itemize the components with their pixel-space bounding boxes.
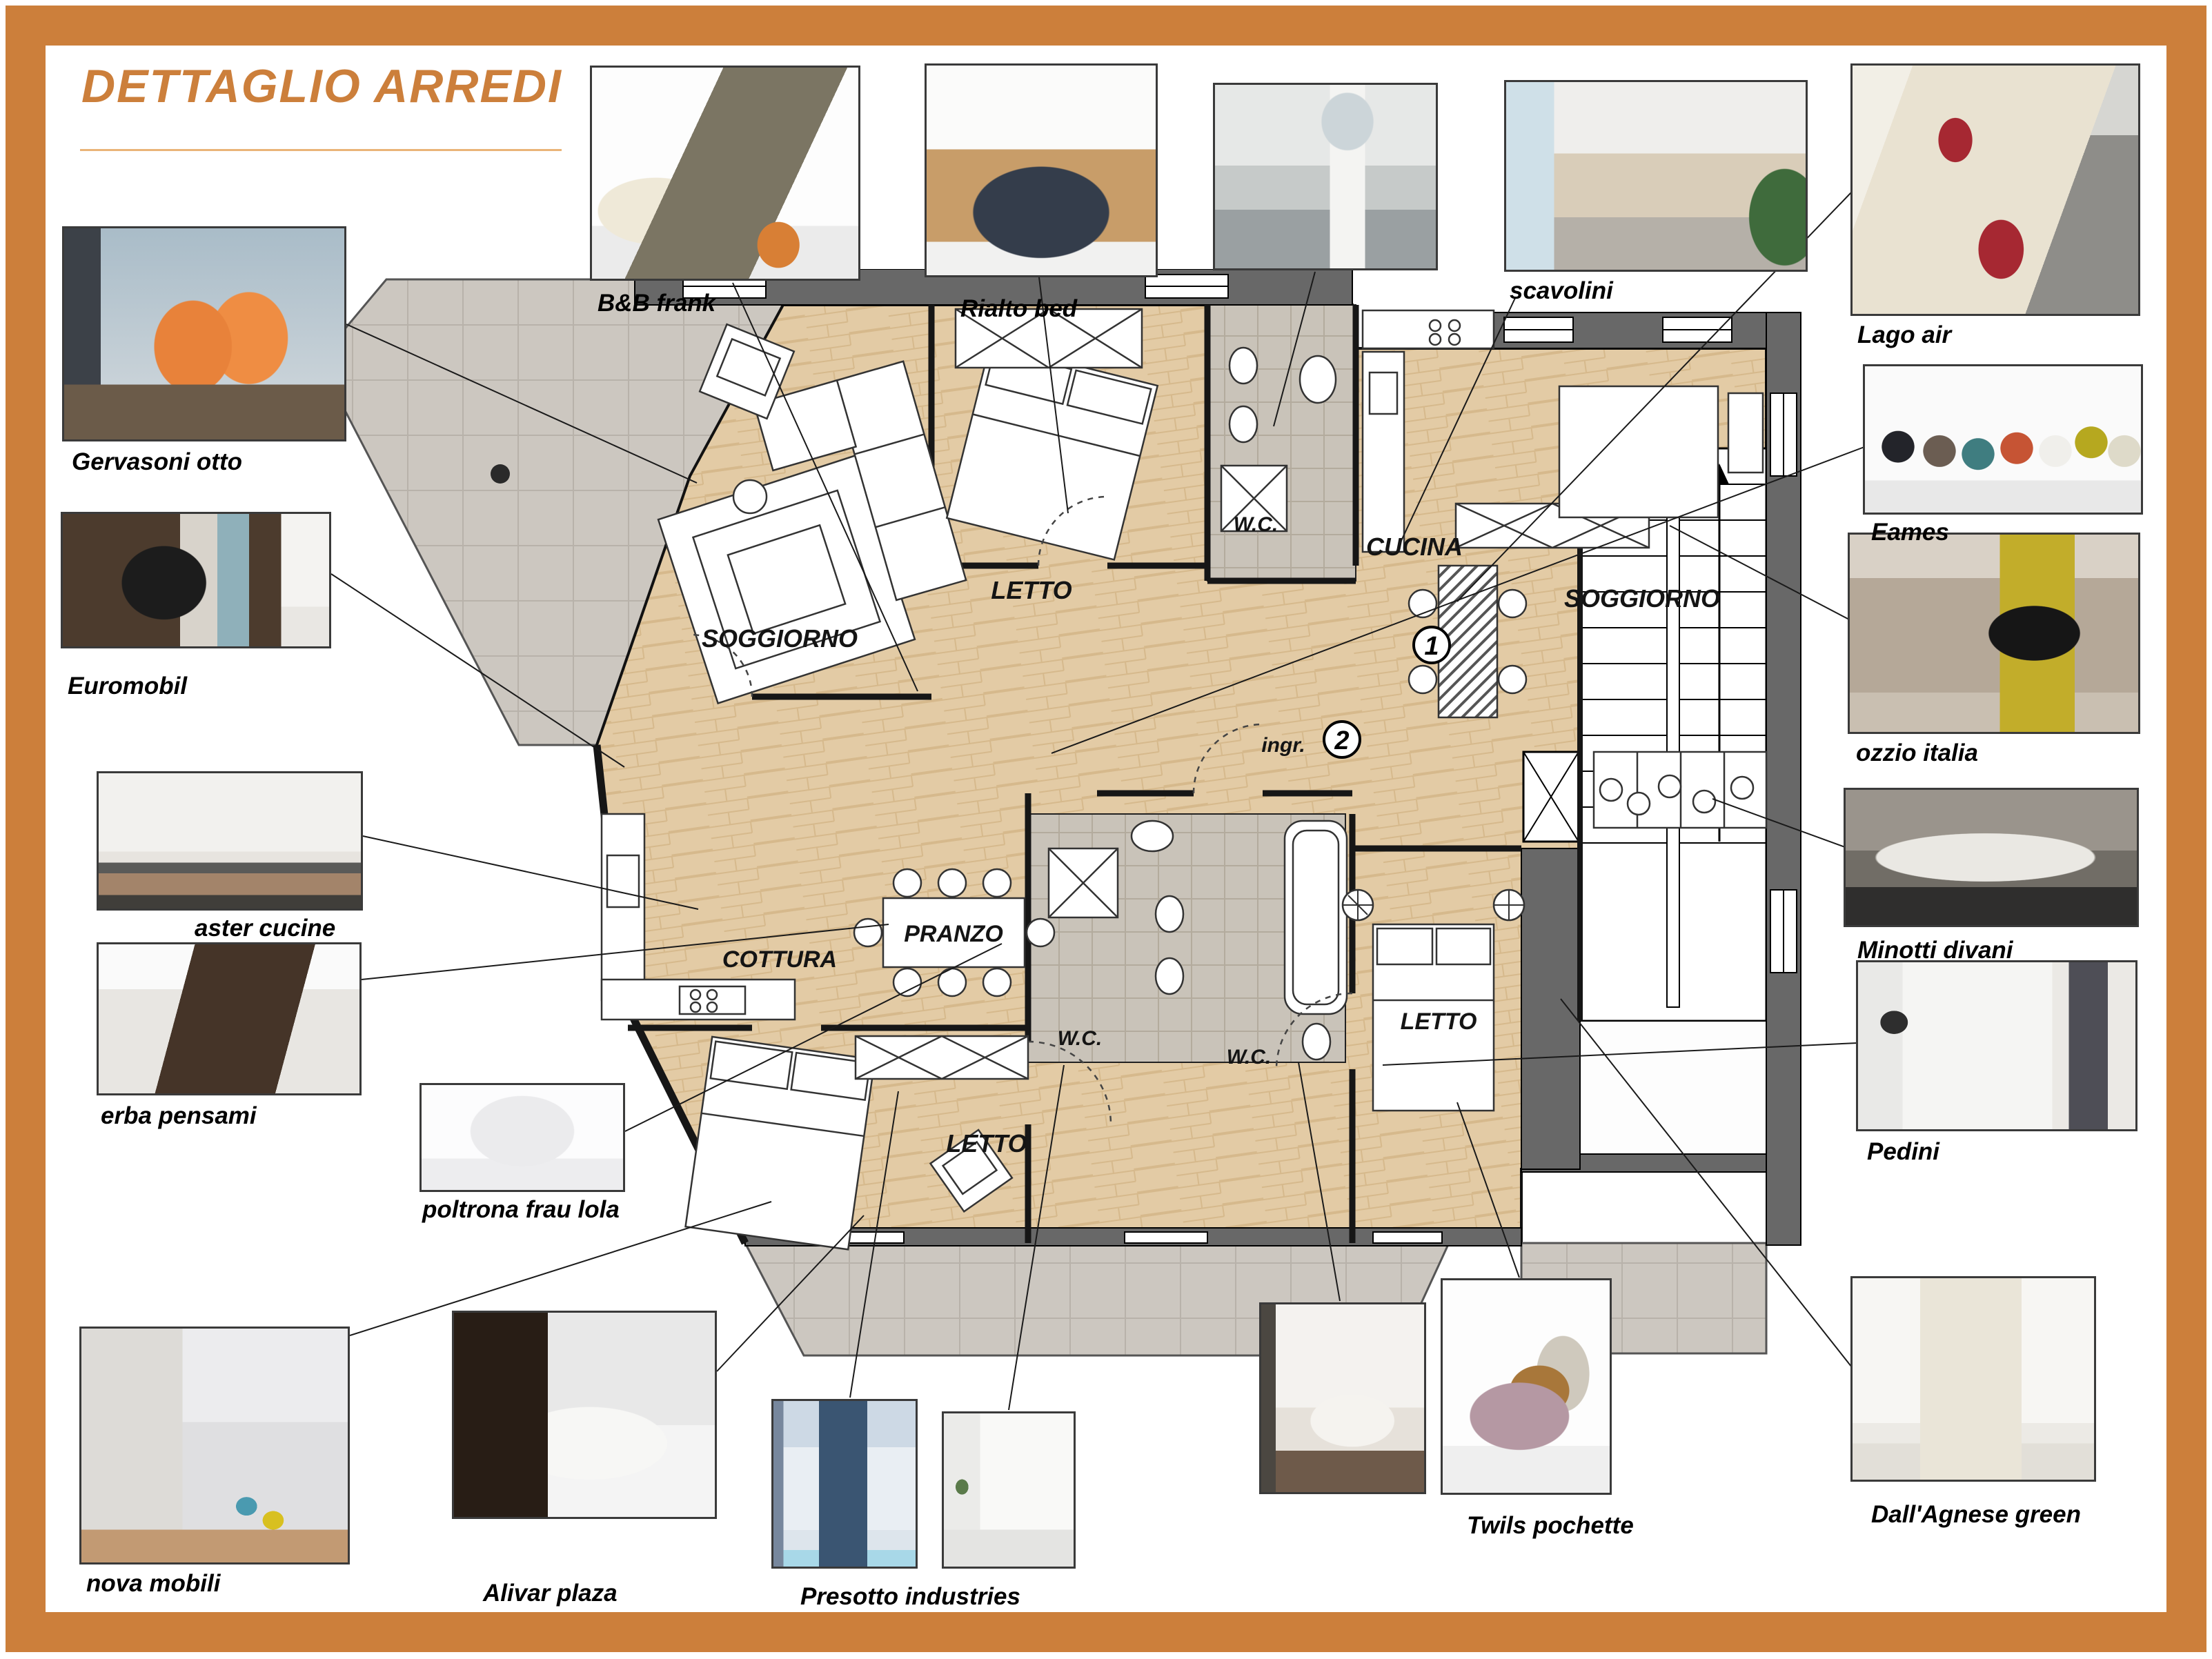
column-dot	[491, 464, 510, 484]
product-photo-erba-pensami	[97, 942, 362, 1095]
side-table	[733, 480, 767, 513]
product-photo-bathroom-top	[1213, 83, 1438, 270]
product-photo-rialto-bed	[925, 63, 1158, 277]
apartment-number-2: 2	[1324, 722, 1360, 757]
product-photo-euromobil	[61, 512, 331, 648]
product-photo-nova-mobili	[79, 1327, 350, 1564]
product-photo-gervasoni-otto	[62, 226, 346, 441]
product-photo-twils-pochette	[1441, 1278, 1612, 1495]
product-label-erba-pensami: erba pensami	[101, 1102, 257, 1130]
room-label-letto-bottom: LETTO	[946, 1129, 1027, 1158]
product-label-minotti-divani: Minotti divani	[1857, 937, 2013, 964]
armchair-right	[1728, 393, 1763, 473]
product-label-presotto-industries: Presotto industries	[800, 1583, 1020, 1611]
room-label-wc-top: W.C.	[1234, 513, 1278, 536]
product-label-euromobil: Euromobil	[68, 673, 187, 700]
product-photo-bathroom-tub	[1259, 1302, 1426, 1494]
page-title: DETTAGLIO ARREDI	[81, 59, 562, 113]
product-photo-alivar-plaza	[452, 1311, 717, 1519]
product-photo-dallagnese-green	[1850, 1276, 2096, 1482]
product-label-aster-cucine: aster cucine	[195, 915, 335, 942]
room-label-ingresso: ingr.	[1261, 734, 1305, 757]
product-label-scavolini: scavolini	[1510, 277, 1613, 305]
wardrobe-bottom	[856, 1036, 1028, 1079]
product-photo-minotti-divani	[1844, 788, 2139, 927]
room-label-pranzo: PRANZO	[904, 921, 1003, 947]
product-label-ozzio-italia: ozzio italia	[1856, 739, 1978, 767]
bed-bottom	[686, 1037, 875, 1249]
apartment-number-1-text: 1	[1424, 632, 1439, 661]
terrace-bottom	[745, 1243, 1766, 1355]
room-label-wc-mid-right: W.C.	[1227, 1046, 1271, 1069]
product-label-twils-pochette: Twils pochette	[1467, 1512, 1634, 1540]
product-label-lago-air: Lago air	[1857, 321, 1951, 349]
sofa-right	[1594, 752, 1766, 828]
room-label-letto-right: LETTO	[1401, 1009, 1477, 1035]
product-photo-poltrona-frau-lola	[419, 1083, 625, 1192]
product-photo-aster-cucine	[97, 771, 363, 911]
apartment-number-1: 1	[1414, 627, 1450, 663]
product-label-gervasoni-otto: Gervasoni otto	[72, 448, 242, 476]
product-photo-pedini	[1856, 960, 2137, 1131]
rug-right	[1559, 386, 1718, 517]
room-label-cucina: CUCINA	[1366, 533, 1463, 561]
room-label-wc-mid-left: W.C.	[1058, 1027, 1102, 1050]
room-label-soggiorno-left: SOGGIORNO	[702, 624, 858, 653]
product-label-dallagnese-green: Dall'Agnese green	[1871, 1501, 2081, 1529]
product-label-rialto-bed: Rialto bed	[960, 295, 1077, 323]
product-label-eames: Eames	[1871, 519, 1949, 546]
product-photo-bathroom-white	[942, 1411, 1076, 1569]
product-photo-scavolini	[1504, 80, 1808, 272]
product-photo-bb-frank	[590, 66, 860, 281]
apartment-number-2-text: 2	[1334, 726, 1349, 755]
room-label-cottura: COTTURA	[722, 946, 837, 973]
room-label-soggiorno-right: SOGGIORNO	[1564, 584, 1720, 613]
product-label-alivar-plaza: Alivar plaza	[483, 1580, 618, 1607]
product-photo-ozzio-italia	[1848, 533, 2140, 734]
product-label-nova-mobili: nova mobili	[86, 1570, 220, 1598]
product-label-pedini: Pedini	[1867, 1138, 1939, 1166]
product-photo-presotto-industries	[771, 1399, 918, 1569]
product-label-poltrona-frau-lola: poltrona frau lola	[422, 1196, 620, 1224]
product-label-bb-frank: B&B frank	[598, 290, 715, 317]
room-label-letto-top: LETTO	[991, 576, 1072, 604]
title-underline	[80, 149, 562, 151]
poster: DETTAGLIO ARREDI	[0, 0, 2212, 1659]
product-photo-lago-air	[1850, 63, 2140, 316]
product-photo-eames	[1863, 364, 2143, 515]
